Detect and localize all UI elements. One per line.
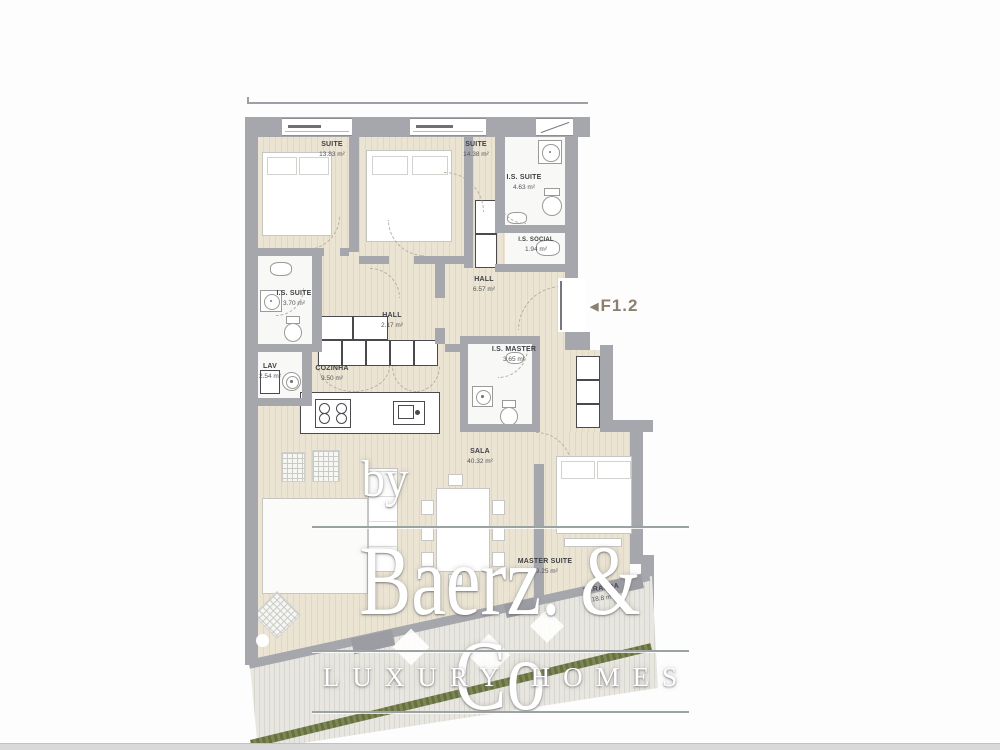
room-label-hall: HALL 6.57 m² <box>458 276 510 294</box>
interior-wall <box>534 464 544 600</box>
washer-icon <box>538 140 562 164</box>
interior-wall <box>445 344 460 352</box>
room-label-hall-small: HALL 2.17 m² <box>368 312 416 330</box>
entrance-recess <box>558 278 586 332</box>
exterior-wall <box>565 332 590 350</box>
interior-wall <box>495 264 578 272</box>
interior-wall <box>258 344 322 352</box>
room-label-is-social: I.S. SOCIAL 1.94 m² <box>504 237 568 254</box>
bottom-strip <box>0 743 1000 750</box>
chair <box>421 552 434 567</box>
chair <box>421 500 434 515</box>
interior-wall <box>460 344 468 432</box>
pillow <box>412 156 448 175</box>
interior-wall <box>258 248 324 256</box>
room-label-master-suite: MASTER SUITE 19.25 m² <box>496 558 594 576</box>
exterior-wall <box>600 345 613 432</box>
toilet-icon <box>542 188 562 216</box>
pillow <box>597 461 631 479</box>
room-label-is-suite-top: I.S. SUITE 4.63 m² <box>502 174 546 192</box>
exterior-wall <box>565 117 578 278</box>
unit-marker: ◀ F1.2 <box>590 296 639 316</box>
room-label-cozinha: COZINHA 9.50 m² <box>302 365 362 383</box>
interior-wall <box>435 328 445 344</box>
chair <box>492 526 505 541</box>
chair <box>448 574 463 586</box>
window <box>536 118 573 136</box>
entrance-door-line <box>560 281 562 330</box>
watermark-rule-middle <box>312 650 689 652</box>
watermark-rule-bottom <box>312 711 689 713</box>
interior-wall <box>258 398 312 406</box>
interior-wall <box>495 225 578 233</box>
room-label-lav: LAV 2.54 m² <box>248 363 292 381</box>
pillow <box>561 461 595 479</box>
window <box>282 118 352 136</box>
sink-icon <box>270 262 292 276</box>
room-label-sala: SALA 40.32 m² <box>454 448 506 466</box>
sink-icon <box>393 401 425 425</box>
chair <box>448 474 463 486</box>
pillow <box>299 157 329 175</box>
dining-table <box>436 488 490 572</box>
console-shelf <box>368 468 398 572</box>
toilet-icon <box>284 316 302 342</box>
exterior-wall <box>600 420 653 432</box>
pillow <box>267 157 297 175</box>
rug <box>281 452 305 482</box>
watermark-rule-top <box>312 526 689 528</box>
stove-icon <box>315 399 351 428</box>
room-label-is-suite-left: I.S. SUITE 3.70 m² <box>272 290 316 308</box>
floor-plan-page: SUITE 13.83 m² SUITE 14.38 m² I.S. SUITE… <box>0 0 1000 750</box>
chair <box>492 500 505 515</box>
roof-line <box>247 102 588 104</box>
toilet-icon <box>500 400 518 426</box>
interior-wall <box>460 424 540 432</box>
roof-line-tick <box>247 97 249 104</box>
rug <box>312 450 340 482</box>
interior-wall <box>414 256 464 264</box>
exterior-wall <box>245 117 258 665</box>
left-arrow-icon: ◀ <box>590 300 598 313</box>
room-label-is-master: I.S. MASTER 3.65 m² <box>486 346 542 364</box>
interior-wall <box>435 264 445 298</box>
bed-bench <box>564 538 622 547</box>
wardrobe <box>576 356 600 428</box>
bed-icon <box>556 456 632 534</box>
unit-label: F1.2 <box>600 296 638 316</box>
interior-wall <box>340 248 349 256</box>
room-label-suite2: SUITE 14.38 m² <box>444 141 508 159</box>
deck-planter <box>256 634 269 647</box>
cabinet-row <box>318 340 438 366</box>
interior-wall <box>460 336 540 344</box>
room-label-suite1: SUITE 13.83 m² <box>300 141 364 159</box>
pillow <box>372 156 408 175</box>
washer-icon <box>472 386 493 407</box>
window <box>410 118 486 136</box>
interior-wall <box>359 256 389 264</box>
chair <box>421 526 434 541</box>
sofa <box>262 498 368 594</box>
kitchen-counter <box>300 392 440 434</box>
